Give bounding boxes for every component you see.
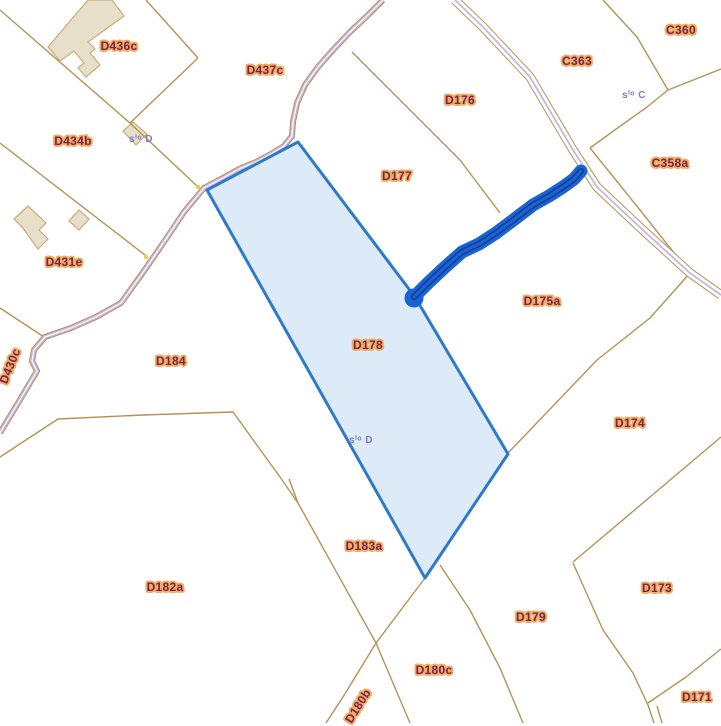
cadastral-map-layer [0,0,721,723]
parcel-label-d173: D173 [642,582,672,594]
parcel-label-d184: D184 [156,355,186,367]
road-major-fill [455,0,721,295]
parcel-label-d171: D171 [682,691,712,703]
parcel-label-d436c: D436c [101,40,138,52]
boundary-line [0,143,145,255]
junction-node-dot [144,255,148,259]
boundary-line [573,437,721,562]
boundary-line [130,58,198,123]
parcel-label-d178: D178 [353,339,383,351]
parcel-label-d182a: D182a [147,581,184,593]
parcel-label-d180c: D180c [416,664,453,676]
parcel-label-d183a: D183a [346,540,383,552]
boundary-line [0,308,44,337]
parcel-label-d437c: D437c [247,64,284,76]
house-label-d178: sⁱᵒ D [349,436,373,446]
parcel-label-c358a: C358a [652,157,689,169]
buildings-layer [14,0,147,249]
house-label-c358a: sⁱᵒ C [622,91,646,101]
building-d431e-small [69,210,89,230]
house-label-d434b: sⁱᵒ D [129,135,153,145]
parcel-label-d175a: D175a [524,295,561,307]
boundary-line [603,0,668,90]
boundary-line [130,123,197,186]
road-major [455,0,721,295]
boundary-line [146,0,198,58]
boundary-line [668,69,721,90]
parcel-label-d177: D177 [382,170,412,182]
parcel-label-d174: D174 [615,417,645,429]
parcel-label-c363: C363 [562,55,592,67]
map-canvas[interactable]: D436c D437c D176 C363 C360 D434b C358a D… [0,0,721,723]
boundary-line [352,52,500,213]
boundary-line [657,706,662,723]
boundary-line [440,565,523,723]
parcel-label-d434b: D434b [54,135,92,147]
parcel-label-c360: C360 [666,24,696,36]
junction-node-dot [196,185,200,189]
boundary-line [0,412,410,723]
selected-path[interactable] [405,171,582,308]
parcel-label-d431e: D431e [46,256,83,268]
parcel-label-d176: D176 [445,94,475,106]
selected-parcel-d178[interactable] [207,142,508,578]
boundary-line [326,578,425,723]
building-d431e-large [14,206,48,249]
parcel-label-d179: D179 [516,611,546,623]
